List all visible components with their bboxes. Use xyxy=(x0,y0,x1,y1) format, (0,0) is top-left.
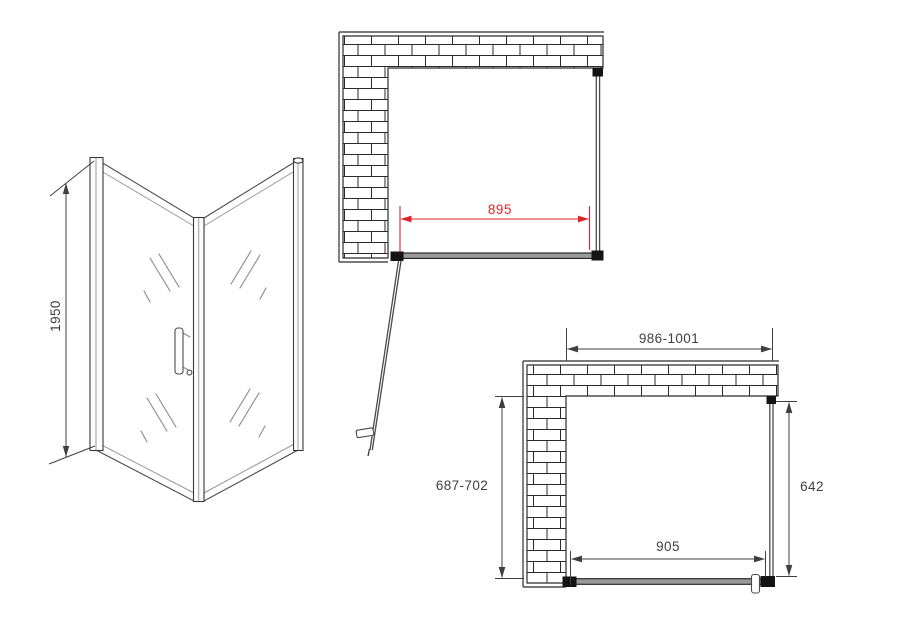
side-panel xyxy=(204,160,298,501)
wall-depth-dimension: 687-702 xyxy=(436,397,524,579)
side-panel-plan-2 xyxy=(770,404,773,584)
perspective-view: 1950 xyxy=(48,158,303,502)
height-dimension-label: 1950 xyxy=(48,300,63,332)
door-glass-dimension: 905 xyxy=(571,539,766,585)
height-dimension: 1950 xyxy=(48,161,95,464)
corner-post xyxy=(194,218,205,502)
door-bottom-rail-plan-2 xyxy=(563,575,776,594)
door-open-swing xyxy=(356,261,401,456)
wall-glass-clamp xyxy=(593,68,604,77)
plan-view-dimensioned: 986-1001 687-702 642 905 xyxy=(436,328,824,593)
glass-width-dimension: 895 xyxy=(400,202,590,252)
wall-depth-dimension-label: 687-702 xyxy=(436,478,488,493)
door-bottom-rail-plan xyxy=(391,251,604,262)
drawing-sheet: 1950 895 xyxy=(0,0,900,636)
wall-profile-bar xyxy=(90,158,103,451)
overall-width-dimension: 986-1001 xyxy=(567,328,773,361)
technical-drawing-canvas: 1950 895 xyxy=(0,0,900,636)
door-handle-plan xyxy=(752,575,760,594)
wall-glass-clamp-2 xyxy=(767,396,777,404)
overall-width-dimension-label: 986-1001 xyxy=(639,331,699,346)
wall-plan-dimensioned xyxy=(523,361,779,587)
side-panel-dimension: 642 xyxy=(776,402,824,577)
swing-door-handle xyxy=(356,428,374,438)
side-panel-dimension-label: 642 xyxy=(800,479,824,494)
wall-plan-open xyxy=(339,32,604,262)
door-glass-dimension-label: 905 xyxy=(656,539,680,554)
side-panel-plan xyxy=(596,77,599,253)
end-profile-bar xyxy=(294,158,304,451)
glass-width-dimension-label: 895 xyxy=(488,202,512,217)
